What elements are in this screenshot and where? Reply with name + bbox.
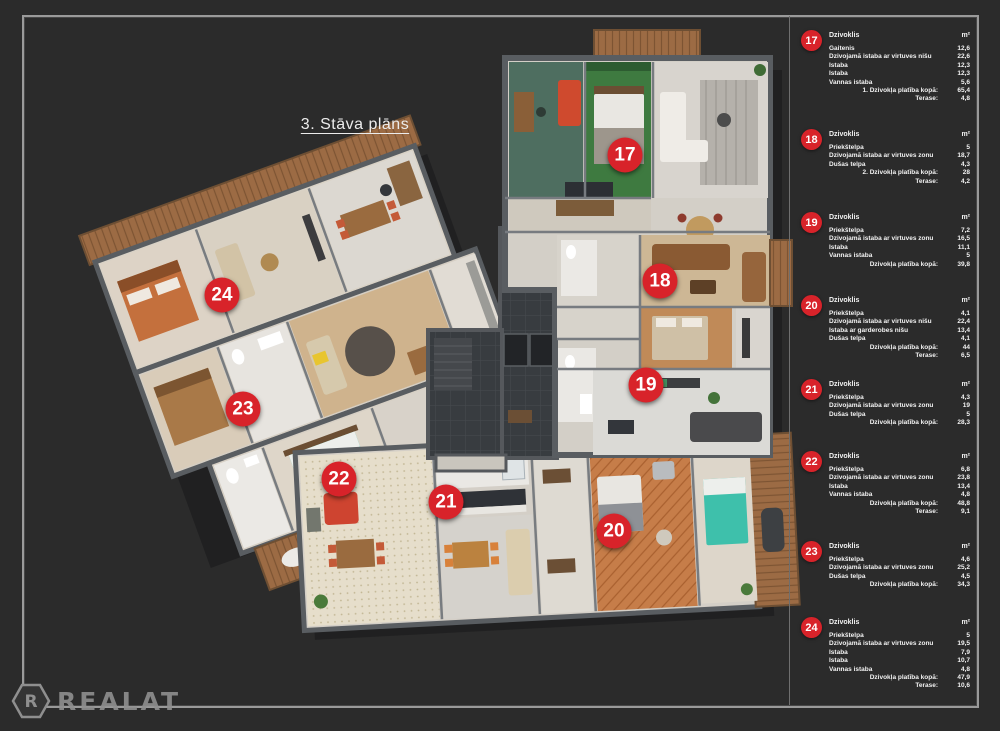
plan-marker-20[interactable]: 20 <box>597 514 632 549</box>
plan-marker-19[interactable]: 19 <box>629 368 664 403</box>
legend-divider-line <box>789 16 790 705</box>
plan-marker-23[interactable]: 23 <box>226 392 261 427</box>
plan-marker-18[interactable]: 18 <box>643 264 678 299</box>
plan-marker-21[interactable]: 21 <box>429 485 464 520</box>
realat-logo: R REALAT <box>10 680 180 722</box>
floor-plan-rendering <box>0 0 1000 731</box>
logo-text: REALAT <box>57 687 180 716</box>
logo-monogram: R <box>24 692 37 712</box>
page: 3. Stāva plāns 17 18 19 20 21 22 23 24 1… <box>0 0 1000 731</box>
plan-marker-22[interactable]: 22 <box>322 462 357 497</box>
plan-marker-17[interactable]: 17 <box>608 138 643 173</box>
page-title: 3. Stāva plāns <box>250 116 460 134</box>
plan-marker-24[interactable]: 24 <box>205 278 240 313</box>
